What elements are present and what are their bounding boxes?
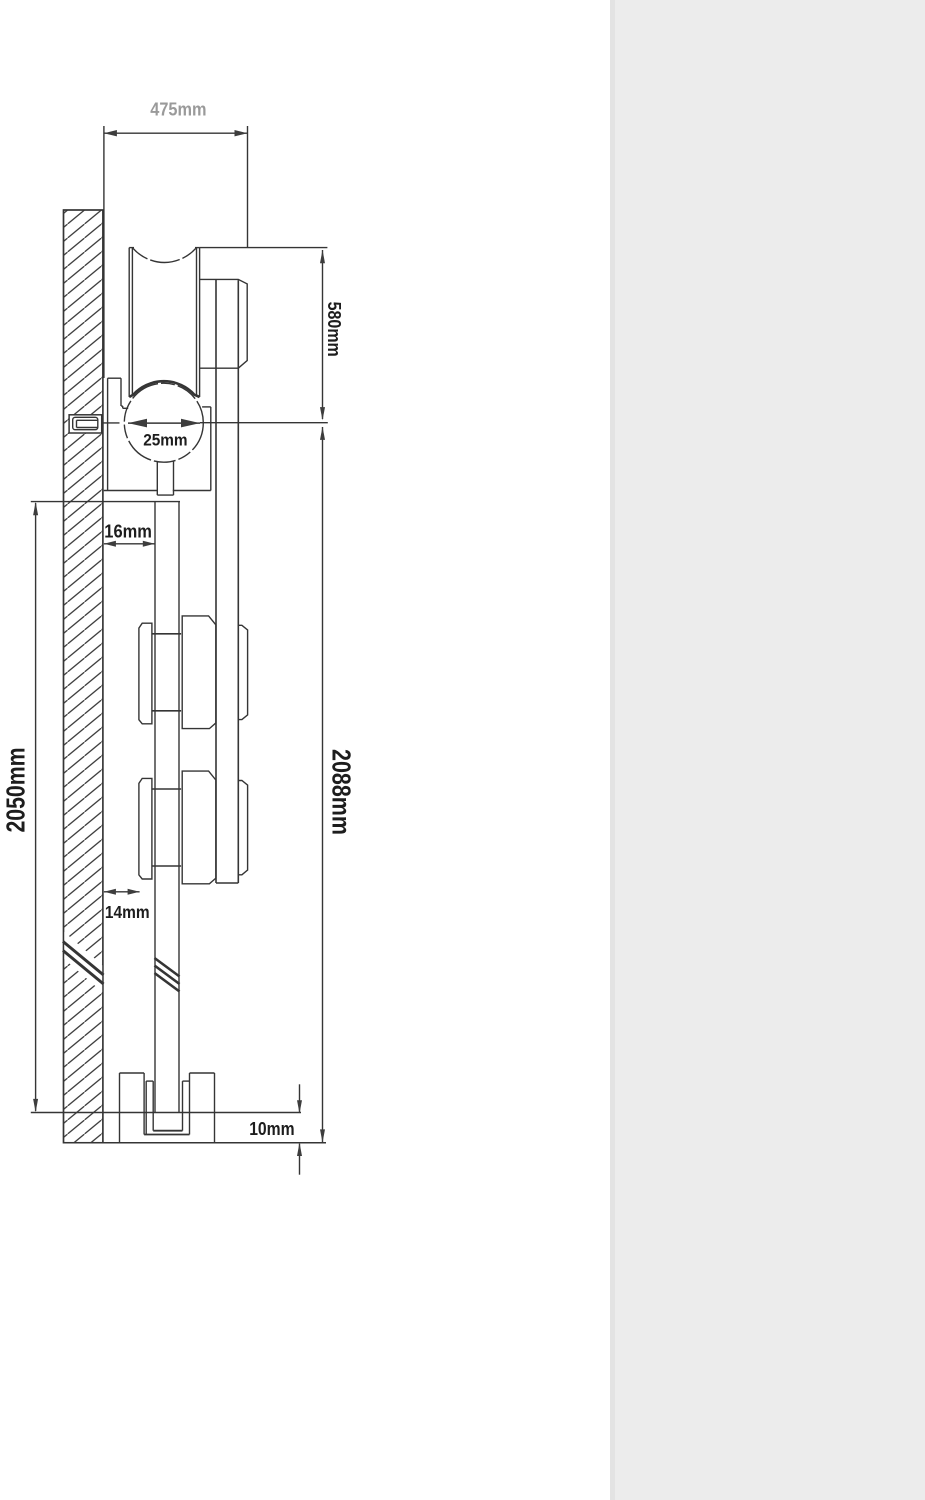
svg-text:14mm: 14mm: [105, 902, 150, 922]
svg-text:16mm: 16mm: [104, 521, 152, 541]
svg-text:10mm: 10mm: [249, 1119, 294, 1139]
svg-text:2088mm: 2088mm: [326, 749, 356, 835]
svg-text:580mm: 580mm: [324, 302, 345, 357]
svg-text:25mm: 25mm: [143, 430, 187, 449]
svg-text:2050mm: 2050mm: [0, 747, 30, 832]
svg-text:475mm: 475mm: [150, 100, 206, 120]
